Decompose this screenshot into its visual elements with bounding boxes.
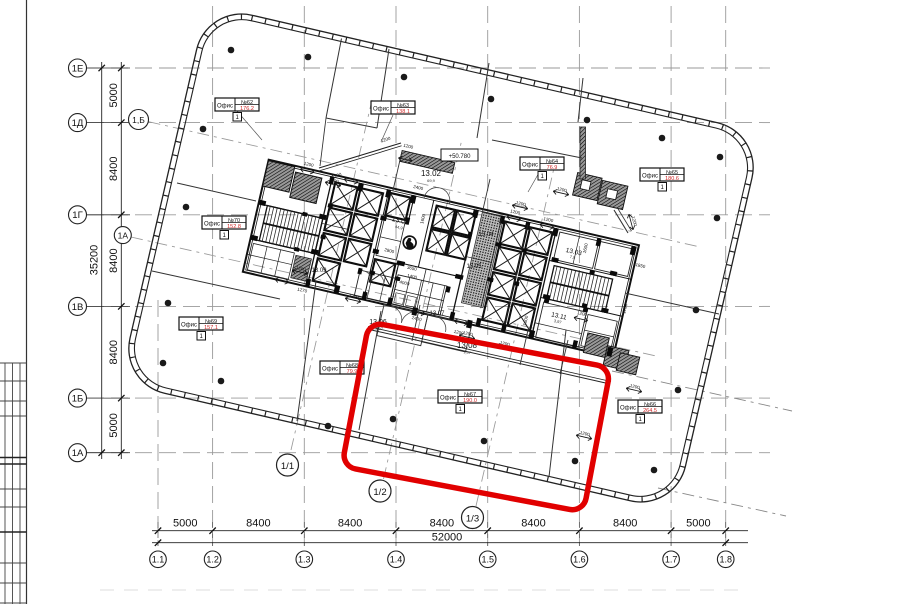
svg-text:5000: 5000 bbox=[686, 518, 710, 530]
svg-text:5000: 5000 bbox=[108, 413, 120, 437]
svg-text:№66: №66 bbox=[644, 402, 656, 408]
svg-text:№70: №70 bbox=[228, 218, 240, 224]
svg-text:13.02: 13.02 bbox=[421, 169, 442, 178]
svg-text:Офис: Офис bbox=[522, 163, 538, 169]
svg-text:№63: №63 bbox=[397, 103, 409, 109]
svg-text:8400: 8400 bbox=[246, 518, 270, 530]
svg-text:1/3: 1/3 bbox=[466, 513, 479, 524]
svg-text:13.04: 13.04 bbox=[478, 232, 494, 238]
svg-text:157.1: 157.1 bbox=[204, 325, 218, 331]
svg-text:1Д: 1Д bbox=[72, 118, 84, 129]
svg-text:5000: 5000 bbox=[108, 83, 120, 107]
svg-text:№64: №64 bbox=[546, 159, 558, 165]
svg-text:79.9: 79.9 bbox=[347, 369, 358, 375]
svg-text:1.6: 1.6 bbox=[573, 555, 586, 565]
svg-text:1.5: 1.5 bbox=[481, 555, 494, 565]
svg-text:Офис: Офис bbox=[642, 174, 658, 180]
svg-text:8400: 8400 bbox=[108, 248, 120, 272]
svg-text:Офис: Офис bbox=[373, 107, 389, 113]
svg-text:8400: 8400 bbox=[613, 518, 637, 530]
svg-text:Офис: Офис bbox=[620, 406, 636, 412]
svg-text:1Б: 1Б bbox=[72, 394, 84, 405]
svg-text:180.6: 180.6 bbox=[665, 176, 679, 182]
svg-text:190.0: 190.0 bbox=[463, 398, 477, 404]
svg-text:13.05: 13.05 bbox=[466, 264, 482, 270]
svg-text:+50.780: +50.780 bbox=[449, 154, 472, 160]
svg-text:1/2: 1/2 bbox=[373, 487, 386, 498]
svg-text:№69: №69 bbox=[205, 319, 217, 325]
svg-text:1,Б: 1,Б bbox=[132, 115, 145, 125]
svg-text:8400: 8400 bbox=[108, 340, 120, 364]
svg-text:1.1: 1.1 bbox=[152, 555, 165, 565]
svg-text:13.09: 13.09 bbox=[311, 268, 327, 274]
svg-text:1/1: 1/1 bbox=[281, 461, 294, 472]
svg-text:35200: 35200 bbox=[89, 245, 101, 276]
svg-text:№68: №68 bbox=[346, 363, 358, 369]
svg-text:5000: 5000 bbox=[173, 518, 197, 530]
svg-text:№67: №67 bbox=[464, 392, 476, 398]
svg-text:8400: 8400 bbox=[430, 518, 454, 530]
svg-text:Офис: Офис bbox=[204, 222, 220, 228]
svg-text:69,9: 69,9 bbox=[427, 178, 436, 183]
svg-text:13.07: 13.07 bbox=[429, 311, 445, 317]
svg-text:152.8: 152.8 bbox=[227, 224, 241, 230]
svg-text:№65: №65 bbox=[666, 170, 678, 176]
svg-text:7,97: 7,97 bbox=[463, 350, 472, 355]
svg-text:1А: 1А bbox=[118, 230, 129, 240]
svg-text:1.8: 1.8 bbox=[719, 555, 732, 565]
svg-text:8400: 8400 bbox=[521, 518, 545, 530]
svg-text:52000: 52000 bbox=[432, 531, 463, 543]
svg-text:264.5: 264.5 bbox=[643, 408, 657, 414]
svg-text:138.1: 138.1 bbox=[396, 109, 410, 115]
svg-text:1Г: 1Г bbox=[72, 210, 82, 221]
svg-text:Офис: Офис bbox=[181, 323, 197, 329]
svg-text:1Е: 1Е bbox=[72, 63, 84, 74]
svg-text:№62: №62 bbox=[241, 100, 253, 106]
svg-text:1.2: 1.2 bbox=[206, 555, 219, 565]
svg-text:1.3: 1.3 bbox=[298, 555, 311, 565]
svg-text:1.7: 1.7 bbox=[665, 555, 678, 565]
svg-text:1А: 1А bbox=[72, 448, 84, 459]
svg-text:76.9: 76.9 bbox=[547, 165, 558, 171]
svg-text:176.2: 176.2 bbox=[240, 106, 254, 112]
svg-text:8400: 8400 bbox=[108, 156, 120, 180]
svg-text:1В: 1В bbox=[72, 302, 84, 313]
svg-text:8400: 8400 bbox=[338, 518, 362, 530]
svg-text:Офис: Офис bbox=[440, 396, 456, 402]
svg-text:Офис: Офис bbox=[322, 367, 338, 373]
svg-text:Офис: Офис bbox=[217, 104, 233, 110]
svg-text:1.4: 1.4 bbox=[390, 555, 403, 565]
